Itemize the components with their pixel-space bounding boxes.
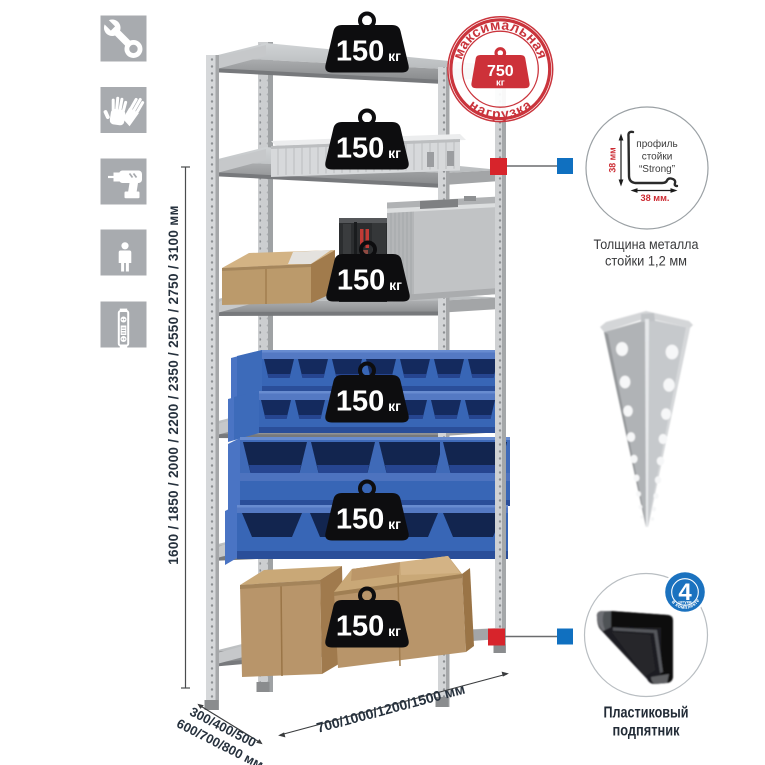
svg-text:стойки 1,2 мм: стойки 1,2 мм — [605, 254, 687, 269]
svg-text:стойки: стойки — [642, 152, 673, 163]
svg-text:38 мм: 38 мм — [608, 147, 618, 172]
svg-text:подпятник: подпятник — [613, 723, 680, 740]
svg-text:38 мм.: 38 мм. — [641, 193, 670, 203]
svg-text:профиль: профиль — [636, 138, 677, 150]
svg-text:Пластиковый: Пластиковый — [604, 705, 689, 722]
svg-text:“Strong”: “Strong” — [639, 164, 675, 175]
svg-text:1600 / 1850 / 2000 / 2200 / 23: 1600 / 1850 / 2000 / 2200 / 2350 / 2550 … — [166, 205, 181, 565]
svg-text:штуки: штуки — [678, 600, 692, 605]
svg-text:кг: кг — [496, 78, 505, 89]
svg-text:Толщина металла: Толщина металла — [594, 237, 699, 252]
